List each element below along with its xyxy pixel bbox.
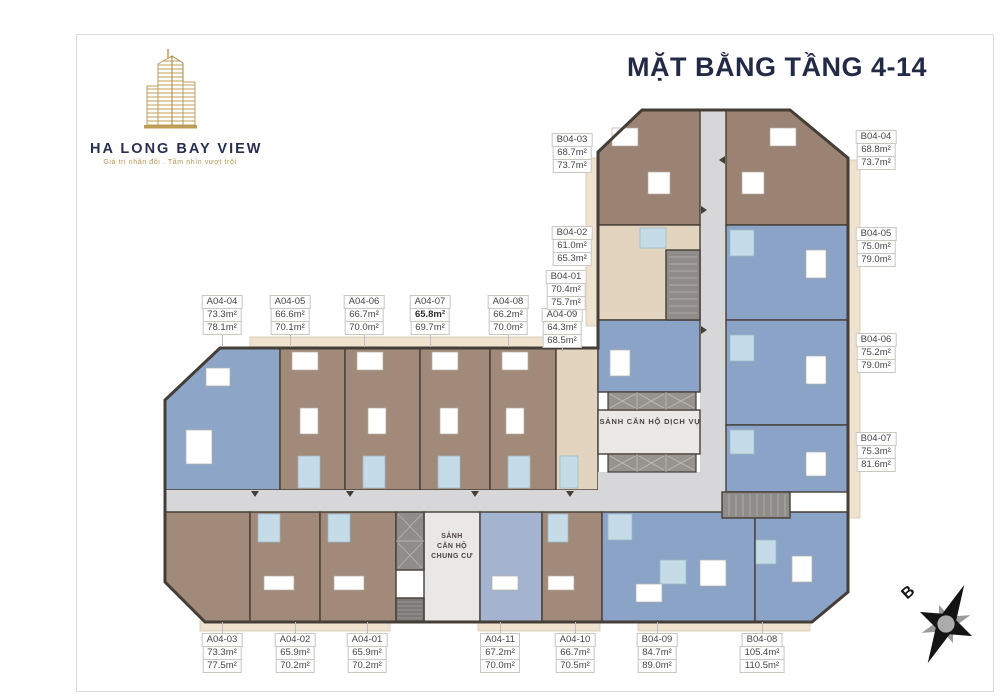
leader-line-A04-08 bbox=[508, 333, 509, 347]
leader-line-B04-09 bbox=[657, 622, 658, 633]
unit-label-B04-06: B04-0675.2m²79.0m² bbox=[856, 333, 897, 373]
service-lobby-label: SẢNH CĂN HỘ DỊCH VỤ bbox=[592, 417, 708, 426]
residential-lobby-region bbox=[424, 512, 480, 622]
unit-label-B04-07: B04-0775.3m²81.6m² bbox=[856, 432, 897, 472]
unit-label-B04-09: B04-0984.7m²89.0m² bbox=[637, 633, 678, 673]
unit-label-A04-08: A04-0866.2m²70.0m² bbox=[488, 295, 529, 335]
unit-label-B04-02: B04-0261.0m²65.3m² bbox=[552, 226, 593, 266]
unit-label-B04-05: B04-0575.0m²79.0m² bbox=[856, 227, 897, 267]
unit-label-A04-01: A04-0165.9m²70.2m² bbox=[347, 633, 388, 673]
leader-line-A04-02 bbox=[295, 622, 296, 633]
unit-label-A04-10: A04-1066.7m²70.5m² bbox=[555, 633, 596, 673]
unit-label-B04-08: B04-08105.4m²110.5m² bbox=[740, 633, 785, 673]
unit-label-A04-07: A04-0765.8m²69.7m² bbox=[410, 295, 451, 335]
leader-line-A04-05 bbox=[290, 333, 291, 347]
unit-label-A04-09: A04-0964.3m²68.5m² bbox=[542, 308, 583, 348]
residential-lobby-label: SẢNH CĂN HỘ CHUNG CƯ bbox=[420, 532, 484, 562]
unit-label-A04-11: A04-1167.2m²70.0m² bbox=[480, 633, 520, 673]
unit-label-A04-06: A04-0666.7m²70.0m² bbox=[344, 295, 385, 335]
floor-plan-drawing bbox=[0, 0, 1000, 700]
leader-line-B04-08 bbox=[762, 622, 763, 633]
corridor-b-wing bbox=[700, 110, 726, 512]
leader-line-A04-07 bbox=[430, 333, 431, 347]
leader-line-A04-11 bbox=[500, 622, 501, 633]
unit-region-B04-03 bbox=[598, 110, 700, 225]
a-wing-bottom-units bbox=[165, 512, 602, 622]
unit-label-A04-05: A04-0566.6m²70.1m² bbox=[270, 295, 311, 335]
leader-line-A04-04 bbox=[222, 333, 223, 347]
leader-line-A04-10 bbox=[575, 622, 576, 633]
corridor-junction bbox=[598, 472, 726, 512]
unit-label-A04-02: A04-0265.9m²70.2m² bbox=[275, 633, 316, 673]
leader-line-A04-01 bbox=[367, 622, 368, 633]
leader-line-A04-03 bbox=[222, 622, 223, 633]
unit-label-B04-04: B04-0468.8m²73.7m² bbox=[856, 130, 897, 170]
leader-line-A04-06 bbox=[364, 333, 365, 347]
unit-label-A04-03: A04-0373.3m²77.5m² bbox=[202, 633, 243, 673]
unit-label-A04-04: A04-0473.3m²78.1m² bbox=[202, 295, 243, 335]
unit-region-A04-11 bbox=[480, 512, 542, 622]
unit-region-B04-04 bbox=[726, 110, 848, 225]
unit-region-A04-03 bbox=[165, 512, 250, 622]
b-wing-stair-core-lower bbox=[722, 492, 790, 518]
unit-label-B04-01: B04-0170.4m²75.7m² bbox=[546, 270, 587, 310]
unit-label-B04-03: B04-0368.7m²73.7m² bbox=[552, 133, 593, 173]
